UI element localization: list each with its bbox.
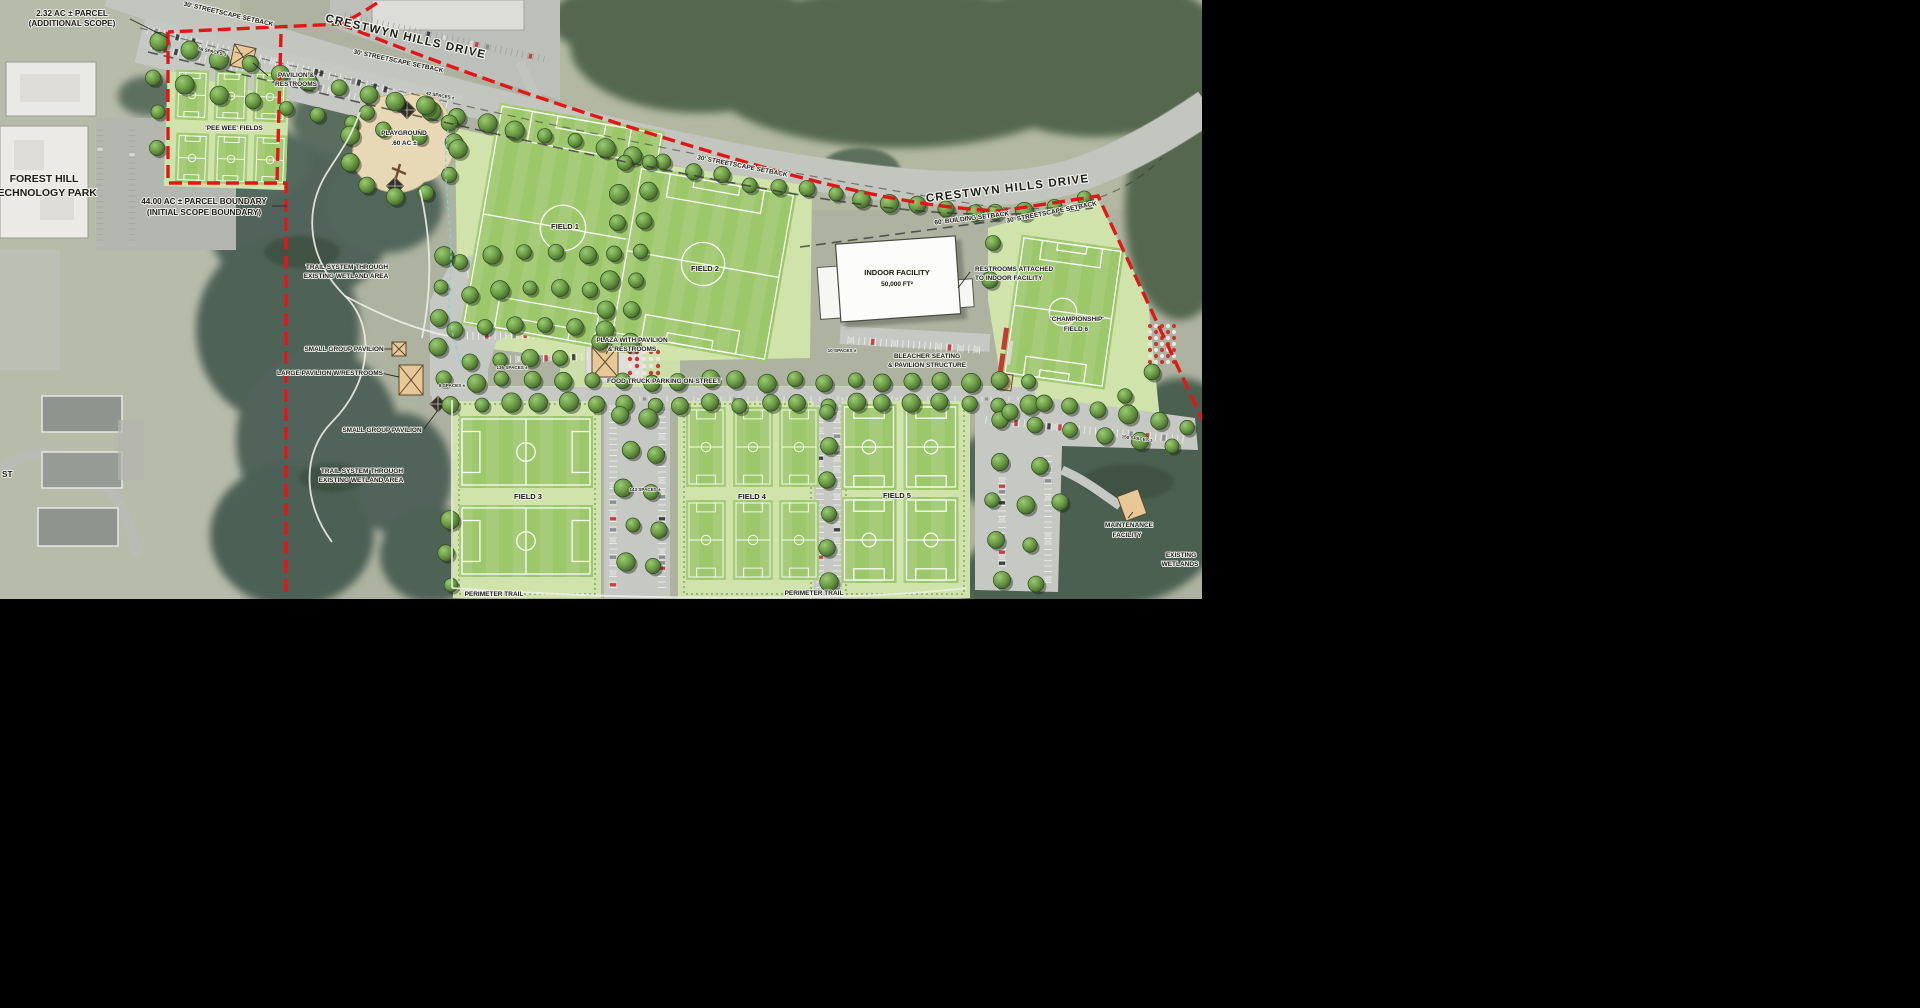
label-field-2: FIELD 2 [691, 264, 719, 273]
plaza-seat-dot [628, 357, 632, 361]
label-parcel-44-line1: 44.00 AC ± PARCEL BOUNDARY [141, 197, 267, 206]
label-spaces-8: 8 SPACES ± [439, 383, 466, 388]
soccer-field [733, 500, 773, 580]
label-restrooms-attached-2: TO INDOOR FACILITY [975, 275, 1043, 282]
label-small-group-pavilion-a: SMALL GROUP PAVILION [304, 346, 384, 353]
soccer-field [1002, 234, 1125, 389]
bleacher-dot [1154, 336, 1158, 340]
label-existing-wetlands-1: EXISTING [1166, 552, 1196, 559]
label-bleacher-1: BLEACHER SEATING [894, 353, 960, 360]
bleacher-dot [1148, 336, 1152, 340]
plaza-seat-dot [642, 364, 646, 368]
bleacher-dot [1166, 330, 1170, 334]
label-spaces-10: 10 SPACES ± [828, 348, 857, 353]
soccer-field [175, 132, 210, 183]
small-group-pavilion-icon [392, 342, 406, 356]
large-pavilion-icon [399, 365, 423, 395]
bleacher-dot [1160, 354, 1164, 358]
bleacher-dot [1166, 336, 1170, 340]
plaza-seat-dot [635, 357, 639, 361]
plaza-seat-dot [649, 364, 653, 368]
label-spaces-136: 136 SPACES ± [496, 365, 528, 370]
label-food-truck: FOOD TRUCK PARKING ON-STREET [607, 378, 721, 385]
soccer-field [686, 407, 726, 487]
plaza-seat-dot [628, 364, 632, 368]
label-perimeter-trail-e: PERIMETER TRAIL [785, 590, 844, 597]
bleacher-dot [1166, 360, 1170, 364]
bleacher-dot [1148, 324, 1152, 328]
parking-stall-row [97, 130, 104, 240]
label-championship-1: 'CHAMPIONSHIP' [1050, 316, 1104, 323]
plaza-seat-dot [649, 371, 653, 375]
bleacher-dot [1148, 330, 1152, 334]
soccer-field [214, 133, 249, 184]
screenshot-canvas: { "canvas": { "background": "#000000" },… [0, 0, 1920, 1008]
soccer-field [686, 500, 726, 580]
label-playground-1: PLAYGROUND [381, 130, 427, 137]
label-spaces-143: 143 SPACES ± [629, 487, 661, 492]
soccer-field [904, 404, 959, 490]
bleacher-dot [1148, 348, 1152, 352]
bleacher-dot [1154, 348, 1158, 352]
soccer-field [253, 134, 288, 185]
label-field-3: FIELD 3 [514, 492, 542, 501]
label-field-4: FIELD 4 [738, 492, 767, 501]
bleacher-dot [1148, 342, 1152, 346]
label-indoor-facility-1: INDOOR FACILITY [864, 268, 929, 277]
label-trail-system-a2: EXISTING WETLAND AREA [304, 273, 389, 280]
bleacher-dot [1172, 336, 1176, 340]
label-bleacher-2: & PAVILION STRUCTURE [888, 362, 967, 369]
label-parcel-44-line2: (INITIAL SCOPE BOUNDARY) [147, 208, 261, 217]
plaza-seat-dot [656, 364, 660, 368]
plaza-seat-dot [656, 350, 660, 354]
bleacher-dot [1154, 360, 1158, 364]
bleacher-dot [1154, 342, 1158, 346]
label-maintenance-2: FACILITY [1113, 532, 1143, 539]
soccer-field [842, 404, 897, 490]
bleacher-dot [1172, 330, 1176, 334]
label-forest-hill-2: TECHNOLOGY PARK [0, 187, 97, 199]
bleacher-dot [1154, 324, 1158, 328]
soccer-field [779, 407, 819, 487]
label-plaza-1: PLAZA WITH PAVILION [596, 337, 668, 344]
label-restrooms-attached-1: RESTROOMS ATTACHED [975, 266, 1054, 273]
soccer-field [459, 416, 593, 488]
plaza-seat-dot [649, 357, 653, 361]
parking-stall-row [129, 130, 136, 240]
label-playground-2: .60 AC ± [391, 140, 417, 147]
label-championship-2: FIELD 6 [1064, 326, 1089, 333]
label-small-group-pavilion-b: SMALL GROUP PAVILION [342, 427, 422, 434]
label-pavilion-restrooms-2: RESTROOMS [275, 81, 318, 88]
bleacher-dot [1172, 348, 1176, 352]
site-plan-map: 2.32 AC ± PARCEL (ADDITIONAL SCOPE) CRES… [0, 0, 1202, 599]
label-existing-wetlands-2: WETLANDS [1162, 561, 1199, 568]
plaza-seat-dot [656, 371, 660, 375]
bleacher-dot [1148, 354, 1152, 358]
label-maintenance-1: MAINTENANCE [1105, 522, 1154, 529]
label-trail-system-b1: TRAIL SYSTEM THROUGH [321, 468, 404, 475]
bleacher-dot [1172, 342, 1176, 346]
parking-stall-row [833, 406, 841, 588]
plaza-seat-dot [635, 364, 639, 368]
bleacher-dot [1160, 360, 1164, 364]
label-field-1: FIELD 1 [551, 222, 579, 231]
label-pavilion-restrooms-1: PAVILION & [278, 72, 315, 79]
label-parcel-232-line1: 2.32 AC ± PARCEL [36, 9, 108, 18]
label-trail-system-a1: TRAIL SYSTEM THROUGH [306, 264, 389, 271]
plaza-seat-dot [656, 357, 660, 361]
label-pee-wee-fields: 'PEE WEE' FIELDS [205, 125, 263, 132]
bleacher-dot [1172, 324, 1176, 328]
bleacher-dot [1148, 360, 1152, 364]
plaza-seat-dot [642, 357, 646, 361]
plaza-seat-dot [635, 371, 639, 375]
label-forest-hill-1: FOREST HILL [10, 173, 79, 185]
label-field-5: FIELD 5 [883, 491, 911, 500]
plaza-seat-dot [642, 371, 646, 375]
label-street-stub: ST [2, 470, 12, 479]
label-plaza-2: & RESTROOMS [608, 346, 657, 353]
soccer-field [733, 407, 773, 487]
bleacher-dot [1160, 348, 1164, 352]
bleacher-dot [1154, 354, 1158, 358]
bleacher-dot [1160, 342, 1164, 346]
bleacher-dot [1154, 330, 1158, 334]
label-large-pavilion: LARGE PAVILION W/RESTROOMS [277, 370, 384, 377]
soccer-field [459, 505, 593, 577]
label-trail-system-b2: EXISTING WETLAND AREA [319, 477, 404, 484]
bleacher-dot [1166, 324, 1170, 328]
soccer-field [904, 497, 959, 583]
bleacher-dot [1166, 354, 1170, 358]
label-parcel-232-line2: (ADDITIONAL SCOPE) [29, 19, 116, 28]
label-indoor-facility-2: 50,000 FT² [881, 281, 914, 288]
soccer-field [779, 500, 819, 580]
soccer-field [842, 497, 897, 583]
plaza-seat-dot [628, 371, 632, 375]
label-perimeter-trail-w: PERIMETER TRAIL [465, 591, 524, 598]
